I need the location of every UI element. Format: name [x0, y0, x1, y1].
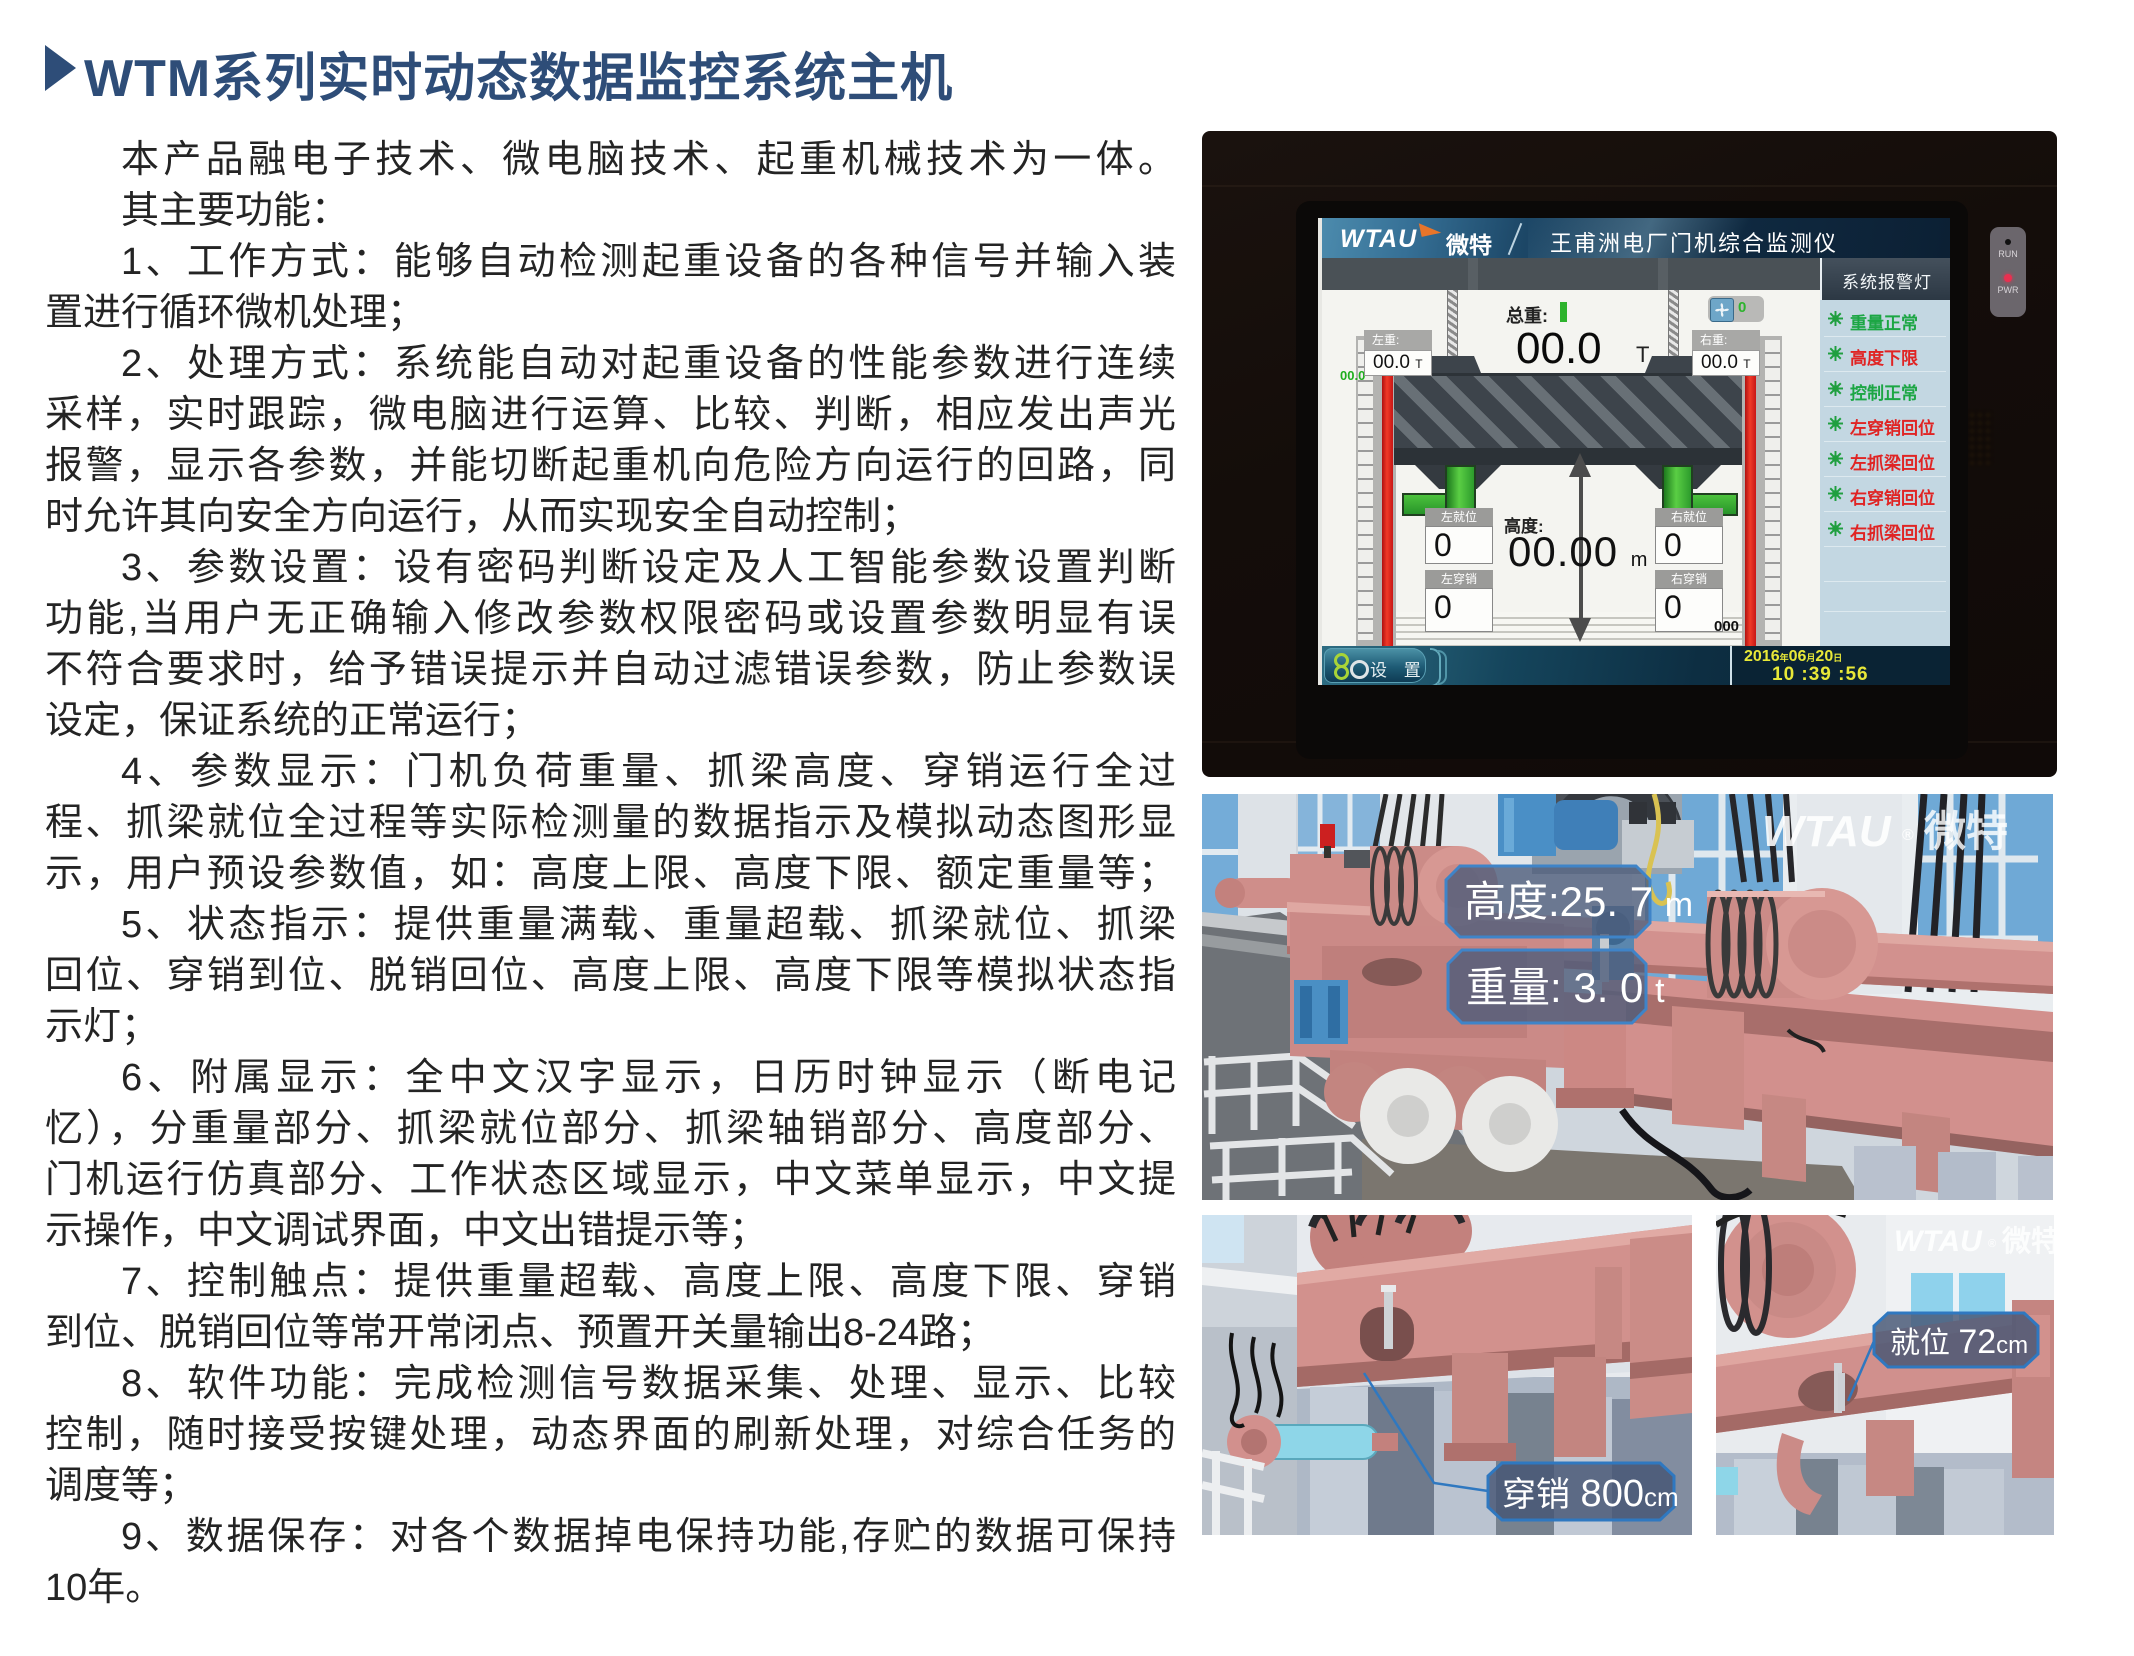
svg-text:®: ®: [1902, 827, 1914, 844]
svg-text:WTAU: WTAU: [1762, 807, 1892, 856]
svg-text:WTAU: WTAU: [1894, 1225, 1983, 1258]
svg-text:微特: 微特: [2001, 1225, 2054, 1258]
svg-text:重量: 3. 0 t: 重量: 3. 0 t: [1466, 964, 1665, 1011]
svg-text:微特: 微特: [1923, 808, 2008, 855]
svg-text:®: ®: [1988, 1238, 1996, 1250]
svg-text:高度:25. 7 m: 高度:25. 7 m: [1464, 878, 1693, 925]
